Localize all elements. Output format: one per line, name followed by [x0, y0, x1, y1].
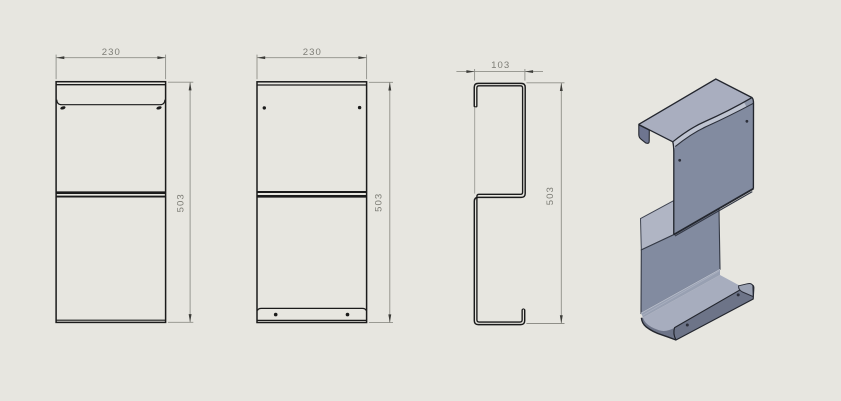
svg-text:503: 503	[175, 193, 186, 212]
svg-text:103: 103	[491, 60, 510, 71]
svg-text:230: 230	[102, 47, 121, 58]
svg-text:230: 230	[303, 47, 322, 58]
svg-text:503: 503	[374, 193, 385, 212]
svg-text:503: 503	[545, 186, 556, 205]
